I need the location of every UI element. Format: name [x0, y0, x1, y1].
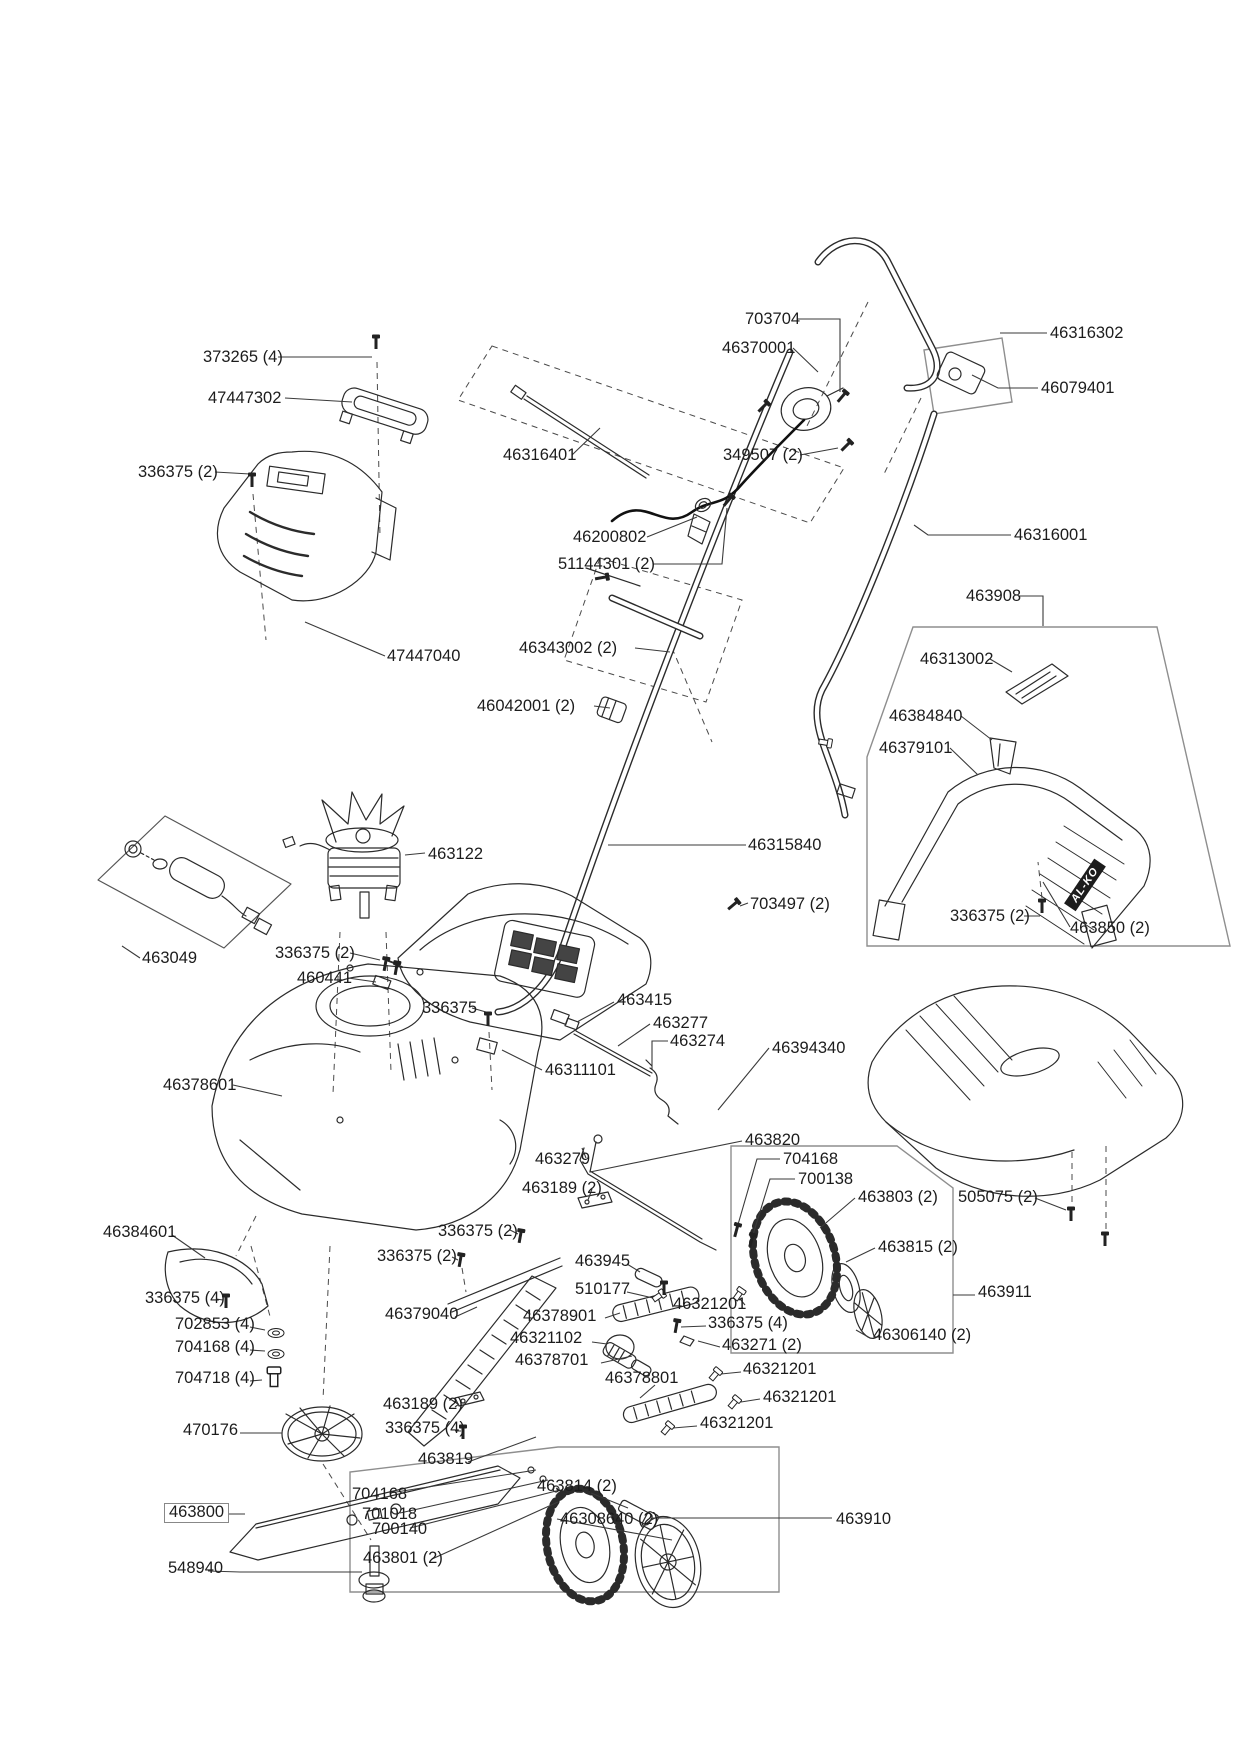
- small-parts-drawing: [373, 351, 987, 990]
- part-label: 51144301 (2): [558, 556, 655, 573]
- part-label: 46384840: [889, 708, 962, 725]
- part-label: 46378601: [163, 1077, 236, 1094]
- part-label: 463271 (2): [722, 1337, 802, 1354]
- part-label: 463801 (2): [363, 1550, 443, 1567]
- cable-clamp-drawing: [596, 696, 627, 724]
- part-label: 470176: [183, 1422, 238, 1439]
- part-label: 46379040: [385, 1306, 458, 1323]
- part-label: 46321201: [673, 1296, 746, 1313]
- part-label: 336375 (2): [275, 945, 355, 962]
- part-label: 46042001 (2): [477, 698, 575, 715]
- part-label: 46315840: [748, 837, 821, 854]
- part-label: 463189 (2): [383, 1396, 463, 1413]
- fastener-glyphs: [222, 335, 1109, 1440]
- part-label: 463819: [418, 1451, 473, 1468]
- line-art: [98, 241, 1183, 1614]
- part-label: 704168: [352, 1486, 407, 1503]
- part-label: 704168 (4): [175, 1339, 255, 1356]
- part-label: 463277: [653, 1015, 708, 1032]
- deck-body-drawing: [212, 964, 542, 1230]
- part-label: 46321201: [743, 1361, 816, 1378]
- part-label: 46321201: [763, 1389, 836, 1406]
- part-label: 46321102: [510, 1330, 582, 1347]
- part-label: 46343002 (2): [519, 640, 617, 657]
- part-label: 703704: [745, 311, 800, 328]
- part-label: 46378901: [523, 1308, 596, 1325]
- part-label: 463911: [978, 1284, 1032, 1301]
- part-label: 548940: [168, 1560, 223, 1577]
- part-label: 46316401: [503, 447, 576, 464]
- part-label: 336375: [422, 1000, 477, 1017]
- part-label: 463803 (2): [858, 1189, 938, 1206]
- part-label: 463122: [428, 846, 483, 863]
- part-label: 463814 (2): [537, 1478, 617, 1495]
- part-label: 46394340: [772, 1040, 845, 1057]
- part-label: 510177: [575, 1281, 630, 1298]
- part-label: 336375 (2): [138, 464, 218, 481]
- part-label: 463820: [745, 1132, 800, 1149]
- part-label: 349507 (2): [723, 447, 803, 464]
- part-label: 336375 (2): [377, 1248, 457, 1265]
- parts-diagram-page: AL-KO 373265 (4)47447302336375 (2)474470…: [0, 0, 1241, 1755]
- part-label: 46079401: [1041, 380, 1114, 397]
- exploded-view-drawing: [0, 0, 1241, 1755]
- part-label: 463049: [142, 950, 197, 967]
- part-label: 46316001: [1014, 527, 1087, 544]
- part-label: 463415: [617, 992, 672, 1009]
- part-label: 46200802: [573, 529, 646, 546]
- part-label: 46384601: [103, 1224, 176, 1241]
- motor-drawing: [283, 792, 404, 918]
- part-label: 463910: [836, 1511, 891, 1528]
- part-label: 702853 (4): [175, 1316, 255, 1333]
- part-label: 336375 (2): [438, 1223, 518, 1240]
- part-label: 46378701: [515, 1352, 588, 1369]
- part-label: 463945: [575, 1253, 630, 1270]
- part-label: 46321201: [700, 1415, 773, 1432]
- part-label: 46306140 (2): [873, 1327, 971, 1344]
- part-label: 336375 (4): [385, 1420, 465, 1437]
- part-label: 46308640 (2): [560, 1511, 658, 1528]
- part-label: 463274: [670, 1033, 725, 1050]
- part-label: 46378801: [605, 1370, 678, 1387]
- part-label: 463815 (2): [878, 1239, 958, 1256]
- fan-drawing: [282, 1406, 362, 1461]
- handlebar-drawing: [498, 241, 937, 1012]
- part-label: 336375 (4): [145, 1290, 225, 1307]
- part-label: 46313002: [920, 651, 993, 668]
- part-label: 704718 (4): [175, 1370, 255, 1387]
- part-label: 47447302: [208, 390, 281, 407]
- capacitor-kit-drawing: [98, 816, 291, 948]
- part-label: 463189 (2): [522, 1180, 602, 1197]
- part-label: 463279: [535, 1151, 590, 1168]
- part-label: 47447040: [387, 648, 460, 665]
- part-label: 505075 (2): [958, 1189, 1038, 1206]
- part-label: 336375 (2): [950, 908, 1030, 925]
- carry-handle-drawing: [336, 385, 431, 446]
- part-label: 46370001: [722, 340, 795, 357]
- part-label: 700138: [798, 1171, 853, 1188]
- part-label: 463908: [966, 588, 1021, 605]
- part-label: 373265 (4): [203, 349, 283, 366]
- part-label: 704168: [783, 1151, 838, 1168]
- part-label: 46379101: [879, 740, 952, 757]
- part-label: 46316302: [1050, 325, 1123, 342]
- part-label: 460441: [297, 970, 352, 987]
- part-label: 46311101: [545, 1062, 616, 1079]
- part-label: 463850 (2): [1070, 920, 1150, 937]
- grassbox-bottom-drawing: [868, 986, 1183, 1196]
- linkage-drawing: [455, 1031, 716, 1406]
- deflector-drawing: [165, 1249, 268, 1323]
- part-label: 703497 (2): [750, 896, 830, 913]
- part-label: 336375 (4): [708, 1315, 788, 1332]
- part-label: 463800: [164, 1503, 229, 1523]
- part-label: 700140: [372, 1521, 427, 1538]
